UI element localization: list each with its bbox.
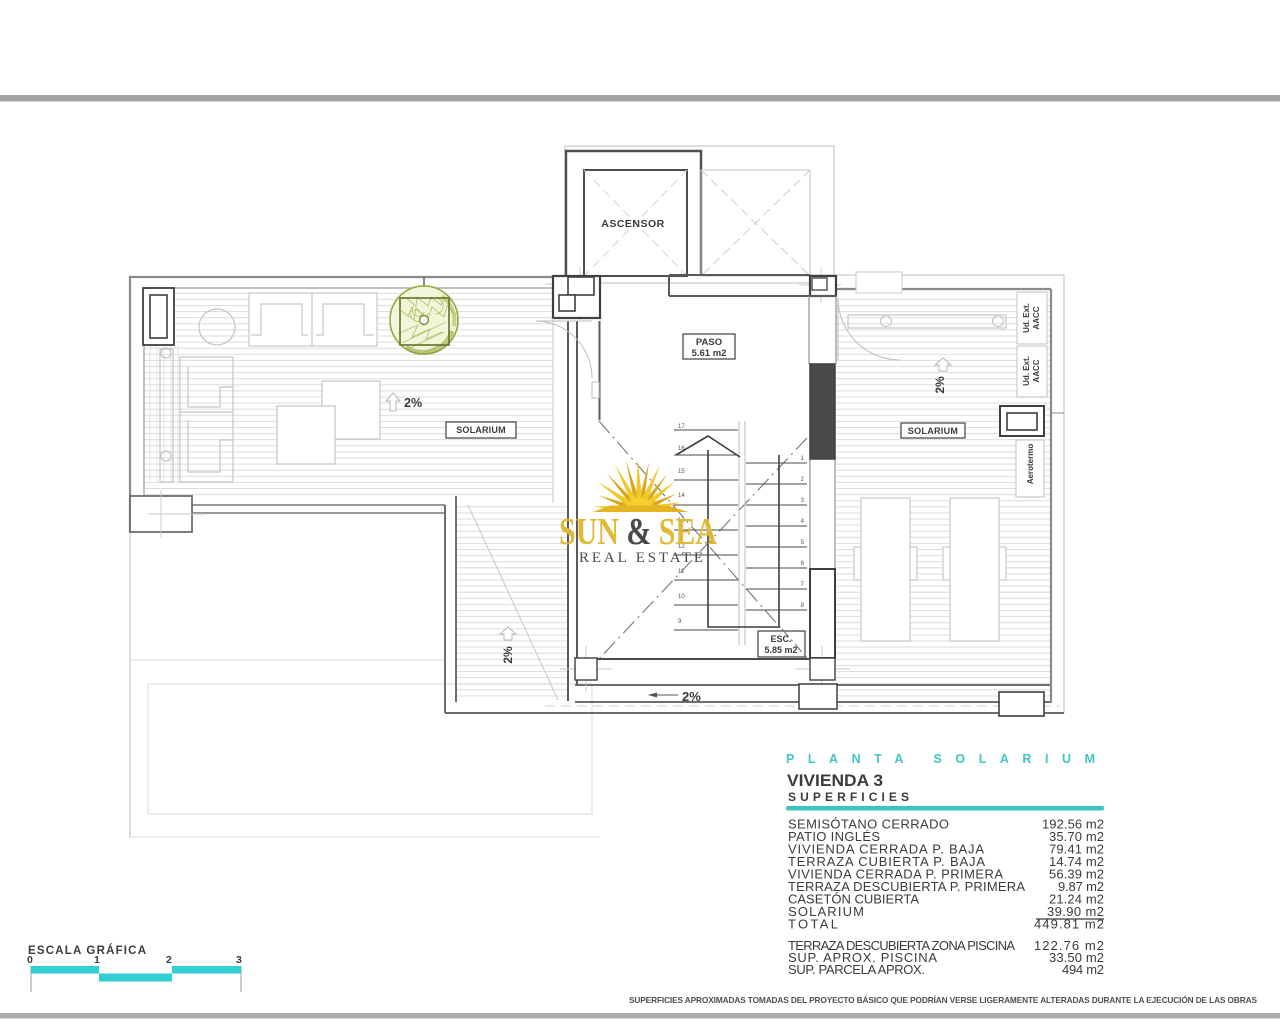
svg-text:494 m2: 494 m2 [1062, 962, 1104, 977]
svg-text:ESC.: ESC. [770, 634, 791, 644]
svg-text:14: 14 [678, 493, 685, 499]
svg-text:ESCALA GRÁFICA: ESCALA GRÁFICA [28, 944, 146, 957]
svg-text:3: 3 [236, 954, 242, 966]
svg-text:SUN & SEA: SUN & SEA [559, 511, 717, 553]
svg-text:Ud. Ext.: Ud. Ext. [1022, 303, 1031, 333]
svg-text:1: 1 [94, 954, 100, 966]
svg-text:0: 0 [27, 954, 33, 966]
svg-text:15: 15 [678, 469, 685, 475]
svg-text:Aerotermo: Aerotermo [1026, 444, 1035, 485]
svg-text:AACC: AACC [1032, 359, 1041, 382]
svg-text:2%: 2% [404, 396, 422, 410]
svg-text:SUPERFICIES APROXIMADAS TOMADA: SUPERFICIES APROXIMADAS TOMADAS DEL PROY… [629, 994, 1257, 1005]
svg-text:VIVIENDA 3: VIVIENDA 3 [787, 771, 883, 790]
svg-text:SOLARIUM: SOLARIUM [456, 425, 506, 435]
svg-text:10: 10 [678, 594, 685, 600]
svg-text:SUP. PARCELA APROX.: SUP. PARCELA APROX. [788, 962, 925, 977]
svg-text:2%: 2% [933, 376, 947, 394]
svg-text:5.61 m2: 5.61 m2 [692, 348, 727, 359]
svg-text:AACC: AACC [1032, 306, 1041, 329]
svg-text:2%: 2% [682, 689, 701, 704]
svg-text:PASO: PASO [696, 337, 722, 348]
svg-text:SOLARIUM: SOLARIUM [908, 426, 958, 436]
svg-text:2: 2 [166, 954, 172, 966]
svg-text:11: 11 [678, 569, 685, 575]
svg-text:17: 17 [678, 424, 685, 430]
svg-text:TOTAL: TOTAL [788, 917, 838, 932]
svg-text:ASCENSOR: ASCENSOR [601, 218, 665, 230]
svg-text:REAL ESTATE: REAL ESTATE [579, 550, 703, 566]
svg-text:Ud. Ext.: Ud. Ext. [1022, 356, 1031, 386]
svg-text:2%: 2% [501, 646, 515, 664]
svg-text:5.85 m2: 5.85 m2 [764, 645, 797, 655]
